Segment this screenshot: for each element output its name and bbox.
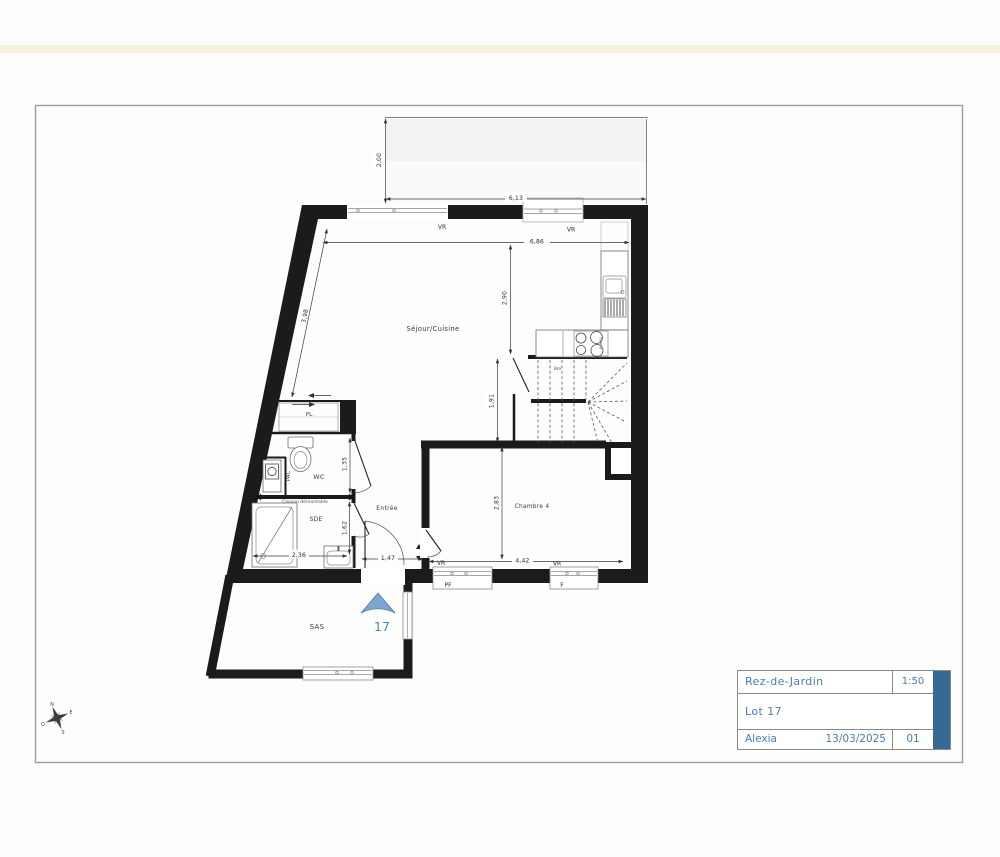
window-top-vr-1 — [347, 204, 448, 221]
entrance-marker: 17 — [361, 593, 395, 634]
room-label-pl: PL. — [306, 412, 315, 418]
svg-text:4,42: 4,42 — [515, 558, 529, 565]
label-f: F — [560, 582, 564, 589]
svg-text:3,98: 3,98 — [301, 308, 311, 323]
interior-doors — [354, 358, 529, 558]
sde-door — [354, 503, 369, 537]
svg-text:1,62: 1,62 — [341, 521, 348, 535]
wc-door — [355, 441, 371, 493]
svg-text:1,47: 1,47 — [381, 555, 395, 562]
wall-cabinet — [601, 222, 628, 251]
kitchen-counter-low — [536, 330, 628, 357]
title-block-row-3: Alexia 13/03/2025 01 — [738, 730, 933, 749]
room-label-pac: PAC — [286, 471, 292, 482]
window-top-vr-2 — [523, 198, 583, 222]
compass-n: N — [50, 702, 54, 708]
washbasin — [324, 546, 353, 568]
compass-rose-icon: N E S O — [41, 702, 73, 736]
title-block-row-2: Lot 17 — [738, 694, 933, 730]
plan-title: Rez-de-Jardin — [738, 671, 892, 693]
sas-right-window — [403, 592, 412, 639]
pac-unit — [263, 460, 281, 492]
room-label-wc: WC — [313, 473, 325, 481]
dim-top-setback: 2,00 — [373, 149, 383, 171]
kitchen-counter — [601, 251, 628, 330]
entrance-arrow-icon — [361, 593, 395, 613]
room-label-chambre4: Chambre 4 — [515, 504, 550, 510]
dim-living-depth: 2,90 — [498, 287, 508, 309]
toilet — [288, 437, 313, 472]
cooktop-note: 60x60 — [598, 336, 603, 348]
svg-text:1,35: 1,35 — [341, 457, 348, 471]
room-label-sde: SDE — [309, 516, 322, 523]
unit-number: 17 — [374, 619, 390, 634]
dim-bedroom-depth: 2,83 — [490, 492, 500, 514]
compass-o: O — [41, 722, 45, 728]
chambre-niche — [605, 442, 635, 480]
plan-date: 13/03/2025 — [825, 733, 886, 749]
svg-text:6,86: 6,86 — [530, 239, 544, 246]
svg-text:2,00: 2,00 — [376, 153, 383, 167]
dim-top-width: 6,13 — [505, 193, 527, 203]
stair-note: 8m — [554, 366, 561, 372]
svg-text:PAC: PAC — [286, 471, 292, 482]
window-bottom-pf — [433, 567, 492, 589]
label-vr-top-2: VR — [567, 227, 575, 234]
svg-text:1,91: 1,91 — [488, 394, 495, 408]
room-label-sas: SAS — [310, 623, 325, 631]
compass-e: E — [69, 710, 72, 716]
dim-living-width: 6,86 — [524, 236, 550, 246]
svg-text:2,83: 2,83 — [493, 496, 500, 510]
room-label-entree: Entrée — [376, 505, 397, 512]
dim-entry-door: 1,47 — [378, 553, 398, 563]
dim-sde-width: 2,36 — [289, 550, 309, 560]
room-label-sejour-cuisine: Séjour/Cuisine — [407, 325, 460, 333]
dim-bedroom-width: 4,42 — [512, 555, 533, 565]
chambre-door — [420, 528, 441, 558]
label-pf: PF — [444, 582, 452, 589]
label-vr-top-1: VR — [438, 224, 446, 231]
author-name: Alexia — [745, 733, 777, 749]
title-block: Rez-de-Jardin 1:50 Lot 17 Alexia 13/03/2… — [737, 670, 951, 750]
svg-text:2,90: 2,90 — [501, 291, 508, 305]
dim-stair-well: 1,91 — [485, 390, 495, 412]
windows-and-doors — [303, 198, 598, 680]
scanned-floor-plan-page: 8m 60x60 — [0, 0, 1000, 857]
title-block-accent-bar — [933, 671, 950, 749]
stair-door — [513, 358, 529, 392]
svg-text:2,36: 2,36 — [292, 552, 306, 559]
page-border — [36, 106, 963, 763]
dim-sde-door-wall: 1,62 — [339, 518, 349, 538]
sas-bottom-window — [303, 667, 373, 680]
compass-s: S — [61, 730, 64, 736]
dim-wc-depth: 1,35 — [339, 454, 349, 474]
lot-label: Lot 17 — [738, 694, 933, 718]
revision-index: 01 — [892, 730, 933, 749]
plan-scale: 1:50 — [892, 671, 933, 693]
window-bottom-f — [550, 567, 598, 589]
interior-walls — [258, 357, 627, 572]
pl-wall-block — [340, 401, 356, 432]
partition-note: Cloison démontable — [282, 498, 328, 505]
svg-text:60x60: 60x60 — [598, 336, 603, 348]
svg-text:6,13: 6,13 — [509, 195, 523, 202]
title-block-row-1: Rez-de-Jardin 1:50 — [738, 671, 933, 694]
label-vr-bottom-1: VR — [437, 560, 445, 567]
